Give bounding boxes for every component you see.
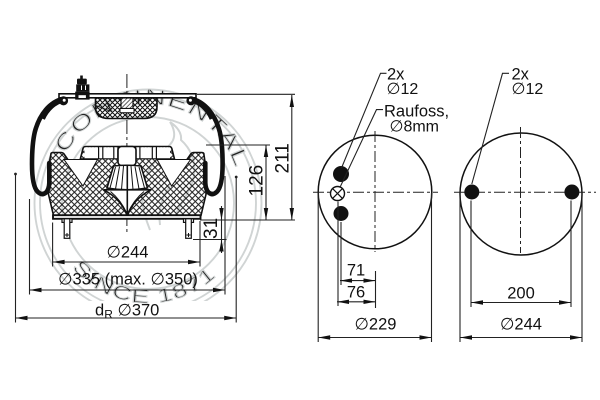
- svg-text:76: 76: [347, 284, 365, 302]
- svg-text:126: 126: [247, 165, 268, 197]
- svg-text:211: 211: [273, 143, 294, 173]
- svg-text:71: 71: [347, 262, 365, 280]
- svg-text:∅229: ∅229: [355, 316, 397, 334]
- svg-text:∅12: ∅12: [387, 81, 419, 98]
- svg-text:31: 31: [201, 218, 222, 239]
- svg-text:∅244: ∅244: [500, 316, 542, 334]
- svg-text:200: 200: [507, 285, 535, 303]
- svg-text:∅244: ∅244: [107, 244, 149, 262]
- svg-text:∅8mm: ∅8mm: [390, 119, 440, 136]
- svg-text:∅335 (max. ∅350): ∅335 (max. ∅350): [58, 271, 198, 289]
- svg-text:∅12: ∅12: [512, 81, 544, 98]
